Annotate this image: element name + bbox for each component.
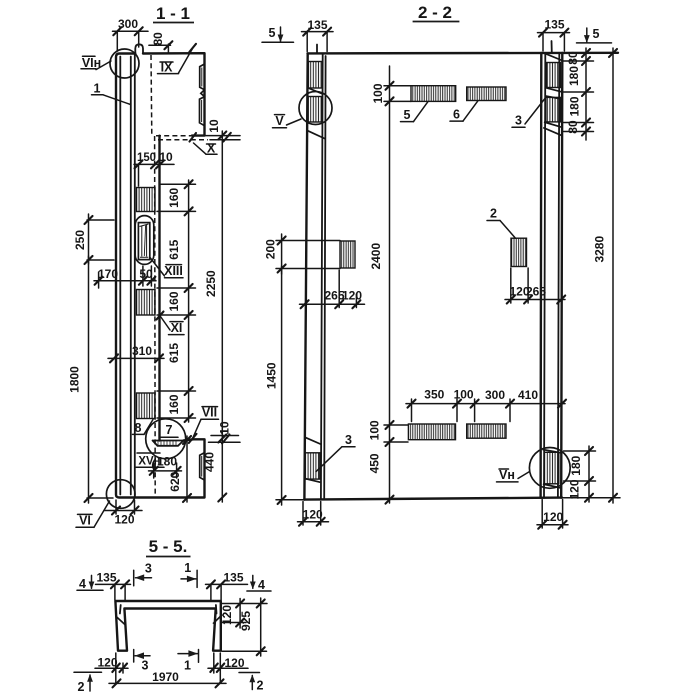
svg-text:VI: VI — [79, 514, 91, 528]
svg-text:80: 80 — [566, 120, 580, 134]
svg-text:300: 300 — [485, 388, 505, 402]
svg-text:160: 160 — [167, 394, 181, 414]
svg-text:7: 7 — [166, 423, 173, 437]
svg-text:2: 2 — [257, 679, 264, 693]
svg-text:1450: 1450 — [265, 362, 279, 389]
svg-text:5 - 5.: 5 - 5. — [149, 537, 188, 556]
svg-text:80: 80 — [566, 51, 580, 65]
svg-text:5: 5 — [404, 108, 411, 122]
svg-text:160: 160 — [167, 291, 181, 311]
svg-text:135: 135 — [307, 18, 327, 32]
svg-text:3: 3 — [345, 433, 352, 447]
svg-text:180: 180 — [157, 455, 177, 469]
svg-text:120: 120 — [568, 479, 582, 499]
svg-text:Vн: Vн — [499, 468, 515, 482]
svg-text:265: 265 — [526, 285, 546, 299]
svg-text:250: 250 — [73, 230, 87, 250]
svg-text:180: 180 — [567, 66, 581, 86]
svg-text:V: V — [275, 114, 284, 128]
svg-text:310: 310 — [132, 344, 152, 358]
svg-text:180: 180 — [568, 96, 582, 116]
svg-text:615: 615 — [167, 239, 181, 259]
svg-text:6: 6 — [453, 108, 460, 122]
svg-text:410: 410 — [518, 388, 538, 402]
svg-text:100: 100 — [371, 83, 385, 103]
svg-text:1800: 1800 — [68, 366, 82, 393]
svg-text:4: 4 — [258, 578, 265, 592]
svg-text:450: 450 — [368, 453, 382, 473]
svg-text:350: 350 — [424, 387, 444, 401]
svg-text:2250: 2250 — [204, 270, 218, 297]
svg-text:620: 620 — [168, 471, 182, 491]
svg-text:VII: VII — [202, 406, 217, 420]
svg-text:2: 2 — [490, 207, 497, 221]
svg-text:5: 5 — [593, 27, 600, 41]
svg-text:XI: XI — [171, 321, 183, 335]
svg-text:1 - 1: 1 - 1 — [156, 4, 190, 23]
svg-text:3: 3 — [142, 659, 149, 673]
svg-text:135: 135 — [96, 571, 116, 585]
svg-text:3: 3 — [145, 562, 152, 576]
svg-text:615: 615 — [167, 343, 181, 363]
svg-text:2: 2 — [78, 680, 85, 694]
svg-text:135: 135 — [223, 571, 243, 585]
svg-text:3: 3 — [515, 114, 522, 128]
svg-text:120: 120 — [114, 513, 134, 527]
svg-text:2 - 2: 2 - 2 — [418, 3, 452, 22]
svg-text:10: 10 — [207, 119, 221, 133]
svg-text:1: 1 — [94, 82, 101, 96]
svg-text:180: 180 — [569, 455, 583, 475]
svg-text:120: 120 — [303, 508, 323, 522]
svg-text:2400: 2400 — [369, 243, 383, 270]
svg-text:XIII: XIII — [164, 264, 183, 278]
svg-text:100: 100 — [368, 420, 382, 440]
svg-text:160: 160 — [167, 187, 181, 207]
svg-text:1: 1 — [184, 659, 191, 673]
svg-text:80: 80 — [151, 32, 165, 46]
svg-text:3280: 3280 — [593, 236, 607, 263]
svg-text:5: 5 — [269, 26, 276, 40]
svg-text:1: 1 — [184, 561, 191, 575]
svg-text:8: 8 — [135, 421, 142, 435]
svg-text:10: 10 — [218, 421, 232, 435]
svg-text:925: 925 — [239, 611, 253, 631]
svg-text:4: 4 — [79, 577, 86, 591]
svg-text:120: 120 — [543, 510, 563, 524]
svg-text:120: 120 — [97, 656, 117, 670]
svg-text:440: 440 — [203, 452, 217, 472]
svg-text:1970: 1970 — [152, 670, 179, 684]
svg-text:200: 200 — [264, 239, 278, 259]
